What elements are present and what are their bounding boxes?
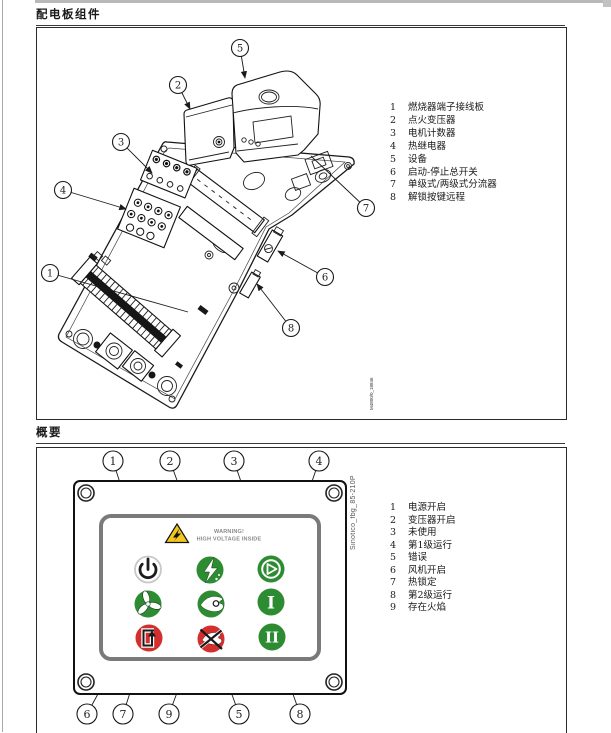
svg-text:8: 8 xyxy=(288,324,294,335)
legend-label: 设备 xyxy=(408,154,427,167)
legend-num: 3 xyxy=(390,128,408,141)
svg-text:II: II xyxy=(265,629,279,647)
legend-row: 5设备 xyxy=(390,154,497,167)
legend-label: 风机开启 xyxy=(408,565,446,578)
legend-num: 1 xyxy=(390,102,408,115)
svg-text:7: 7 xyxy=(120,708,127,721)
legend-label: 电源开启 xyxy=(408,502,446,515)
isometric-drawing: 1 2 3 4 5 6 7 8 xyxy=(37,28,566,419)
figure1-drawing-code: M4800/0_18846 xyxy=(369,352,374,410)
legend-num: 5 xyxy=(390,154,408,167)
legend-label: 变压器开启 xyxy=(408,515,456,528)
svg-text:4: 4 xyxy=(60,186,66,197)
legend-row: 6启动-停止总开关 xyxy=(390,167,497,180)
svg-text:9: 9 xyxy=(166,708,173,721)
legend-row: 6风机开启 xyxy=(390,565,456,578)
svg-text:7: 7 xyxy=(363,204,369,215)
legend-label: 未使用 xyxy=(408,527,437,540)
svg-text:1: 1 xyxy=(47,269,53,280)
header-fragment xyxy=(603,0,611,7)
legend-row: 7热锁定 xyxy=(390,577,456,590)
svg-text:2: 2 xyxy=(175,81,181,92)
figure-box-overview: WARNING! HIGH VOLTAGE INSIDE xyxy=(36,447,567,733)
flame-failure-icon xyxy=(198,626,225,653)
figure2-side-code: Sinotico_fbg_85-210P xyxy=(350,446,357,550)
section-title-distribution-board: 配电板组件 xyxy=(36,6,565,26)
legend-overview: 1电源开启 2变压器开启 3未使用 4第1级运行 5错误 6风机开启 7热锁定 … xyxy=(390,502,456,615)
header-divider xyxy=(35,0,611,3)
legend-row: 1燃烧器端子接线板 xyxy=(390,102,497,115)
legend-label: 错误 xyxy=(408,552,427,565)
legend-row: 2变压器开启 xyxy=(390,515,456,528)
panel-callout-6: 6 xyxy=(77,704,97,724)
callout-8: 8 xyxy=(283,320,300,337)
stage2-light: II xyxy=(259,624,286,651)
callout-1: 1 xyxy=(42,265,59,282)
panel-callout-4: 4 xyxy=(309,451,329,471)
svg-text:2: 2 xyxy=(167,455,174,468)
flame-icon xyxy=(198,591,225,618)
legend-row: 3未使用 xyxy=(390,527,456,540)
legend-num: 4 xyxy=(390,540,408,553)
callout-7: 7 xyxy=(358,200,375,217)
legend-row: 4热继电器 xyxy=(390,141,497,154)
callout-6: 6 xyxy=(317,269,334,286)
panel-callout-7: 7 xyxy=(113,704,133,724)
legend-num: 8 xyxy=(390,590,408,603)
legend-label: 第2级运行 xyxy=(408,590,452,603)
legend-row: 5错误 xyxy=(390,552,456,565)
panel-callout-3: 3 xyxy=(224,451,244,471)
legend-label: 存在火焰 xyxy=(408,602,446,615)
legend-row: 2点火变压器 xyxy=(390,115,497,128)
legend-num: 4 xyxy=(390,141,408,154)
legend-row: 7单级式/两级式分流器 xyxy=(390,179,497,192)
legend-row: 3电机计数器 xyxy=(390,128,497,141)
legend-row: 4第1级运行 xyxy=(390,540,456,553)
legend-label: 燃烧器端子接线板 xyxy=(408,102,484,115)
svg-text:1: 1 xyxy=(110,455,117,468)
legend-row: 8第2级运行 xyxy=(390,590,456,603)
svg-text:3: 3 xyxy=(118,138,124,149)
panel-callout-5: 5 xyxy=(229,704,249,724)
panel-callout-1: 1 xyxy=(103,451,123,471)
callout-3: 3 xyxy=(113,134,130,151)
control-box xyxy=(232,71,320,162)
panel-callout-2: 2 xyxy=(160,451,180,471)
legend-distribution-board: 1燃烧器端子接线板 2点火变压器 3电机计数器 4热继电器 5设备 6启动-停止… xyxy=(390,102,497,205)
legend-num: 8 xyxy=(390,192,408,205)
legend-label: 解锁按键远程 xyxy=(408,192,465,205)
legend-num: 5 xyxy=(390,552,408,565)
page-edge-line xyxy=(2,0,3,732)
power-icon xyxy=(135,557,161,583)
transformer-spark-icon xyxy=(197,557,224,584)
control-panel-drawing: WARNING! HIGH VOLTAGE INSIDE xyxy=(37,448,566,733)
legend-num: 2 xyxy=(390,115,408,128)
legend-label: 热继电器 xyxy=(408,141,446,154)
legend-num: 7 xyxy=(390,179,408,192)
legend-row: 9存在火焰 xyxy=(390,602,456,615)
legend-num: 6 xyxy=(390,167,408,180)
not-used-play-icon xyxy=(258,556,285,583)
legend-label: 点火变压器 xyxy=(408,115,456,128)
svg-text:8: 8 xyxy=(297,708,304,721)
legend-num: 3 xyxy=(390,527,408,540)
legend-label: 电机计数器 xyxy=(408,128,456,141)
legend-label: 第1级运行 xyxy=(408,540,452,553)
legend-label: 启动-停止总开关 xyxy=(408,167,478,180)
svg-text:6: 6 xyxy=(322,273,328,284)
section-title-overview: 概要 xyxy=(36,424,565,444)
svg-text:5: 5 xyxy=(237,44,243,55)
callout-2: 2 xyxy=(170,77,187,94)
legend-num: 6 xyxy=(390,565,408,578)
legend-label: 单级式/两级式分流器 xyxy=(408,179,497,192)
stage1-light: I xyxy=(258,589,285,616)
callout-5: 5 xyxy=(232,40,249,57)
legend-label: 热锁定 xyxy=(408,577,437,590)
warning-line2: HIGH VOLTAGE INSIDE xyxy=(197,537,262,543)
ignition-transformer xyxy=(184,98,234,165)
svg-text:4: 4 xyxy=(316,455,323,468)
panel-callout-9: 9 xyxy=(159,704,179,724)
svg-text:6: 6 xyxy=(84,708,91,721)
warning-line1: WARNING! xyxy=(214,529,244,535)
legend-num: 1 xyxy=(390,502,408,515)
legend-num: 7 xyxy=(390,577,408,590)
svg-text:5: 5 xyxy=(236,708,243,721)
legend-num: 2 xyxy=(390,515,408,528)
legend-num: 9 xyxy=(390,602,408,615)
legend-row: 8解锁按键远程 xyxy=(390,192,497,205)
manual-page: { "figure1": { "title": "配电板组件", "drawin… xyxy=(0,0,611,732)
panel-plate xyxy=(74,481,346,694)
svg-text:I: I xyxy=(267,594,275,614)
panel-callout-8: 8 xyxy=(290,704,310,724)
reset-lockout-icon xyxy=(136,625,163,652)
figure-box-distribution-board: 1 2 3 4 5 6 7 8 xyxy=(36,27,567,420)
svg-text:3: 3 xyxy=(231,455,238,468)
callout-4: 4 xyxy=(55,182,72,199)
legend-row: 1电源开启 xyxy=(390,502,456,515)
